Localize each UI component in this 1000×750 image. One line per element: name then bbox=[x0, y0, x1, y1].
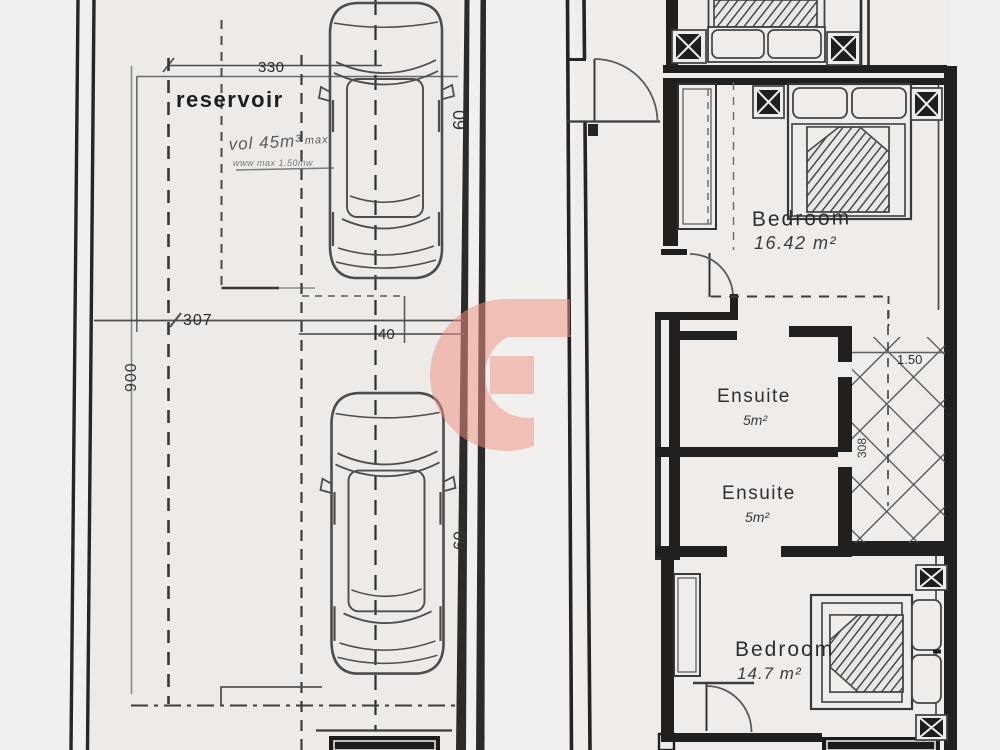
svg-text:5m²: 5m² bbox=[743, 412, 768, 428]
svg-text:308: 308 bbox=[855, 438, 869, 458]
svg-text:330: 330 bbox=[258, 59, 285, 76]
svg-text:reservoir: reservoir bbox=[176, 87, 284, 112]
svg-text:Bedroom: Bedroom bbox=[752, 206, 852, 231]
svg-text:1.50: 1.50 bbox=[897, 352, 922, 367]
svg-text:Ensuite: Ensuite bbox=[717, 386, 791, 407]
svg-text:60: 60 bbox=[450, 110, 470, 130]
svg-text:60: 60 bbox=[450, 531, 469, 550]
svg-text:16.42 m²: 16.42 m² bbox=[754, 233, 837, 253]
svg-text:14.7 m²: 14.7 m² bbox=[737, 664, 802, 683]
svg-text:Bedroom: Bedroom bbox=[735, 638, 834, 661]
svg-text:Ensuite: Ensuite bbox=[722, 483, 796, 504]
svg-text:5m²: 5m² bbox=[745, 509, 770, 525]
svg-text:900: 900 bbox=[123, 362, 140, 392]
svg-text:307: 307 bbox=[183, 312, 213, 329]
